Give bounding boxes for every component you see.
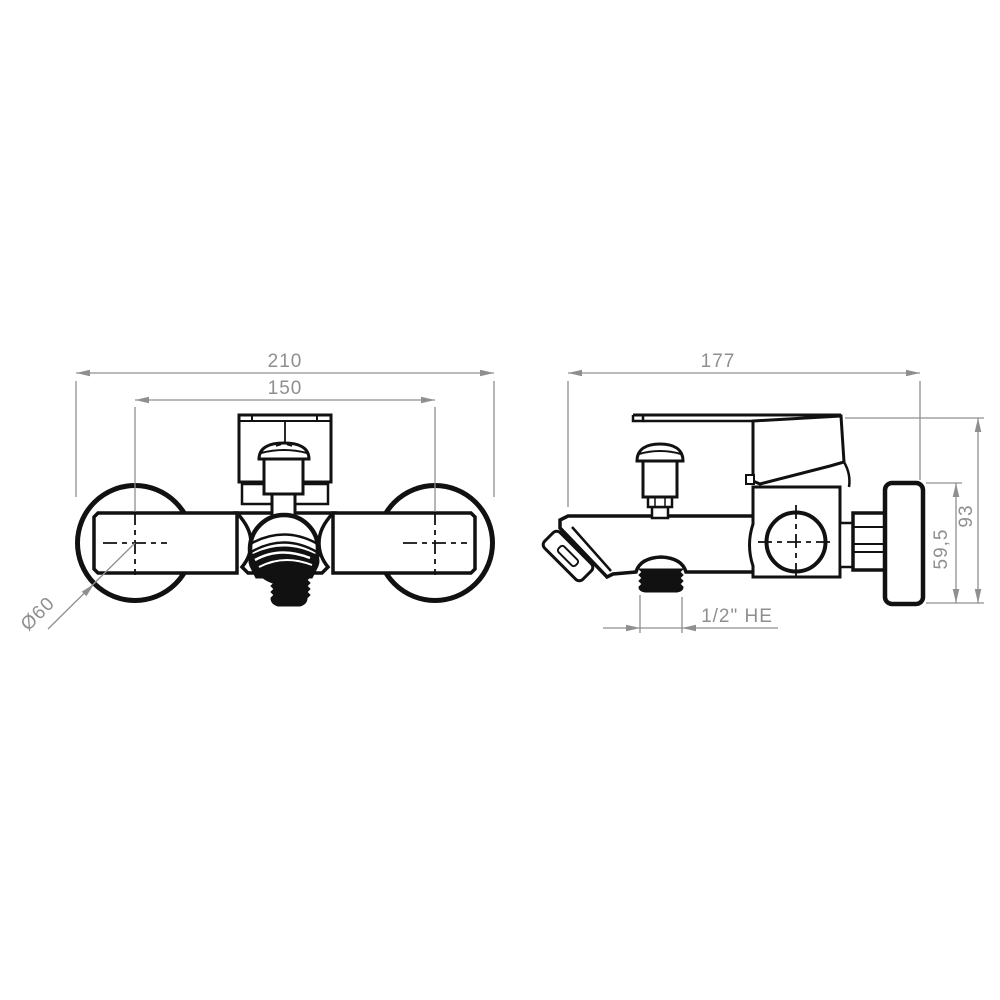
handle-body (753, 416, 844, 484)
thread-outlet-front (268, 575, 310, 606)
technical-drawing: 210 150 Ø60 177 93 59,5 (0, 0, 1000, 1000)
technical-drawing-page: 210 150 Ø60 177 93 59,5 (0, 0, 1000, 1000)
diverter-knob-side (637, 444, 683, 518)
ext-lines-177 (568, 381, 920, 507)
dim-d60-label: Ø60 (17, 593, 59, 635)
connector-stub (840, 523, 853, 567)
dim-595-label: 59,5 (931, 529, 952, 570)
hex-nut (853, 513, 885, 570)
arrow-half-inch-left (626, 625, 640, 632)
dim-93-label-group: 93 (956, 504, 977, 527)
arrow-210-right (480, 370, 494, 377)
knob-neck-side (652, 507, 668, 518)
knob-cylinder-front (264, 459, 303, 494)
diverter-knob-front (259, 443, 309, 494)
arrow-150-left (135, 397, 149, 404)
dim-93-label: 93 (956, 504, 977, 527)
arrow-93-bottom (975, 589, 982, 603)
dim-595-label-group: 59,5 (931, 529, 952, 570)
dim-d60-label-group: Ø60 (17, 593, 59, 635)
dim-210-label: 210 (268, 351, 303, 372)
knob-cylinder-side (643, 461, 677, 497)
side-view (541, 415, 923, 604)
cartridge-dome-arc (844, 462, 849, 487)
arrow-93-top (975, 418, 982, 432)
arrow-595-bottom (953, 589, 960, 603)
arrow-177-right (906, 370, 920, 377)
ext-lines-half-inch (640, 595, 682, 633)
dim-150-label: 150 (268, 378, 303, 399)
dim-177-label: 177 (701, 351, 736, 372)
thread-outlet-side (639, 569, 683, 592)
handle-hinge-tab (746, 475, 754, 484)
arrow-210-left (76, 370, 90, 377)
arrow-177-left (568, 370, 582, 377)
arrow-595-top (953, 483, 960, 497)
front-view (78, 415, 493, 606)
wall-flange-side (885, 483, 923, 604)
spout-front (249, 515, 319, 583)
arrow-150-right (421, 397, 435, 404)
dim-half-inch-label: 1/2" HE (701, 606, 773, 627)
arrow-half-inch-right (682, 625, 696, 632)
